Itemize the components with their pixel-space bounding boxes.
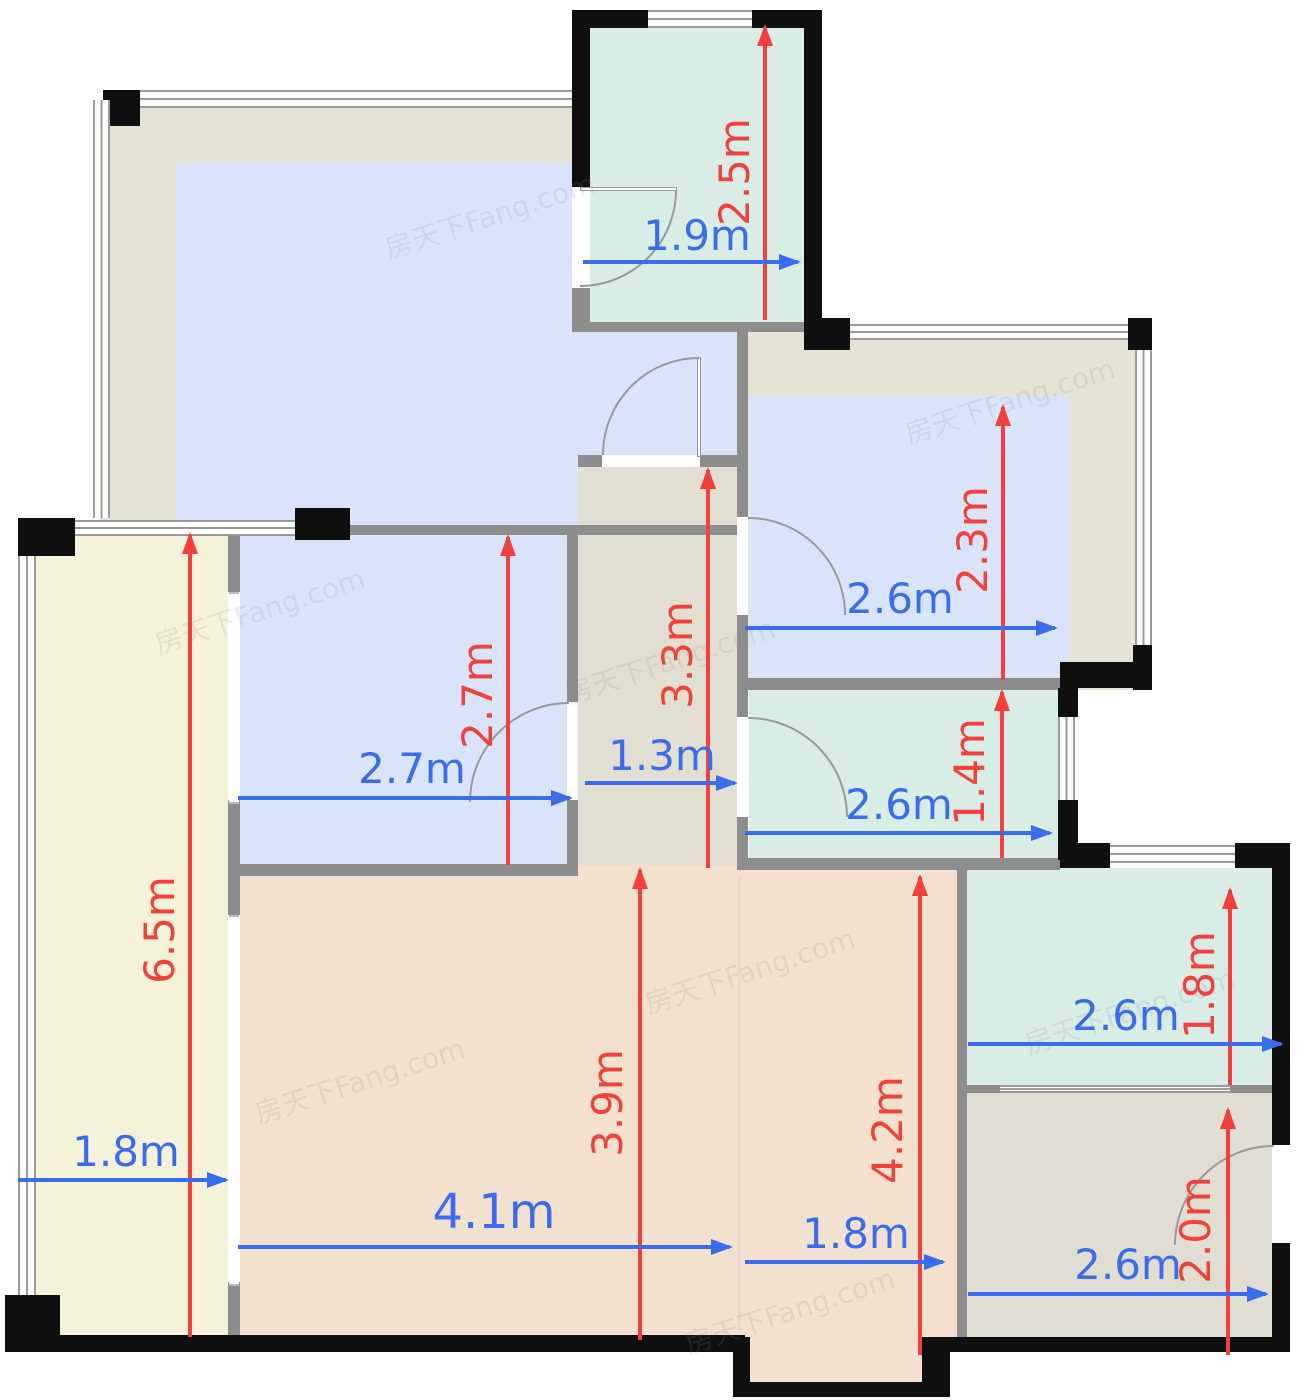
wall-corner-black [1128, 318, 1152, 350]
sliding-door-opening [229, 915, 239, 1286]
wall-black [804, 10, 822, 322]
room-balcony-fill [36, 536, 228, 1337]
window [648, 10, 752, 28]
wall-segment [957, 858, 967, 1345]
wall-black [1058, 688, 1078, 717]
window [1000, 1085, 1230, 1093]
dimension-label: 2.6m [1072, 995, 1180, 1037]
window [93, 100, 110, 518]
floor-plan-canvas: 房天下Fang.com 房天下Fang.com 房天下Fang.com 房天下F… [0, 0, 1306, 1400]
dimension-label: 2.3m [952, 486, 994, 594]
wall-segment [572, 322, 822, 332]
wall-corner-black [5, 1295, 60, 1352]
wall-black [5, 1335, 745, 1352]
dimension-label: 2.5m [714, 118, 756, 226]
wall-corner-black [18, 518, 75, 556]
window [140, 90, 572, 108]
wall-segment [228, 1282, 240, 1337]
door-opening [602, 455, 700, 467]
wall-segment [228, 800, 240, 915]
window [1135, 350, 1152, 645]
dimension-label: 2.6m [845, 784, 953, 826]
wall-black [1272, 843, 1290, 1145]
room-dining-step-fill [750, 1330, 922, 1382]
door-opening [737, 517, 748, 615]
wall-segment [228, 864, 578, 876]
window [1058, 717, 1075, 800]
door-opening [737, 717, 748, 817]
wall-black [1272, 1243, 1290, 1352]
dimension-label: 1.3m [608, 735, 716, 777]
wall-corner-black [804, 318, 850, 350]
dimension-label: 1.4m [949, 718, 991, 826]
dimension-label: 1.8m [802, 1213, 910, 1255]
dimension-label: 2.6m [846, 578, 954, 620]
wall-black [572, 10, 648, 28]
hall-divider-line [738, 876, 741, 1331]
wall-black [935, 1337, 1290, 1352]
room-top-teal-fill [590, 28, 805, 322]
dimension-label: 2.7m [358, 748, 466, 790]
dimension-label: 2.7m [457, 641, 499, 749]
dimension-label: 3.9m [587, 1049, 629, 1157]
wall-segment [737, 858, 1060, 870]
dimension-label: 6.5m [139, 876, 181, 984]
window [1110, 845, 1235, 863]
dimension-label: 4.1m [432, 1188, 555, 1236]
dimension-label: 4.2m [867, 1076, 909, 1184]
wall-segment [572, 288, 590, 322]
dimension-label: 3.3m [657, 601, 699, 709]
door-opening [1272, 1145, 1290, 1243]
window [850, 324, 1128, 340]
dimension-label: 1.8m [72, 1131, 180, 1173]
wall-corner-black [295, 508, 350, 540]
wall-segment [737, 678, 1078, 690]
wall-segment [567, 800, 578, 864]
dimension-label: 1.8m [1179, 931, 1221, 1039]
wall-black [1060, 662, 1152, 688]
dimension-label: 2.6m [1074, 1244, 1182, 1286]
window [18, 556, 36, 1295]
wall-black [1060, 843, 1110, 868]
wall-segment [350, 525, 737, 535]
dimension-label: 1.9m [643, 215, 751, 257]
